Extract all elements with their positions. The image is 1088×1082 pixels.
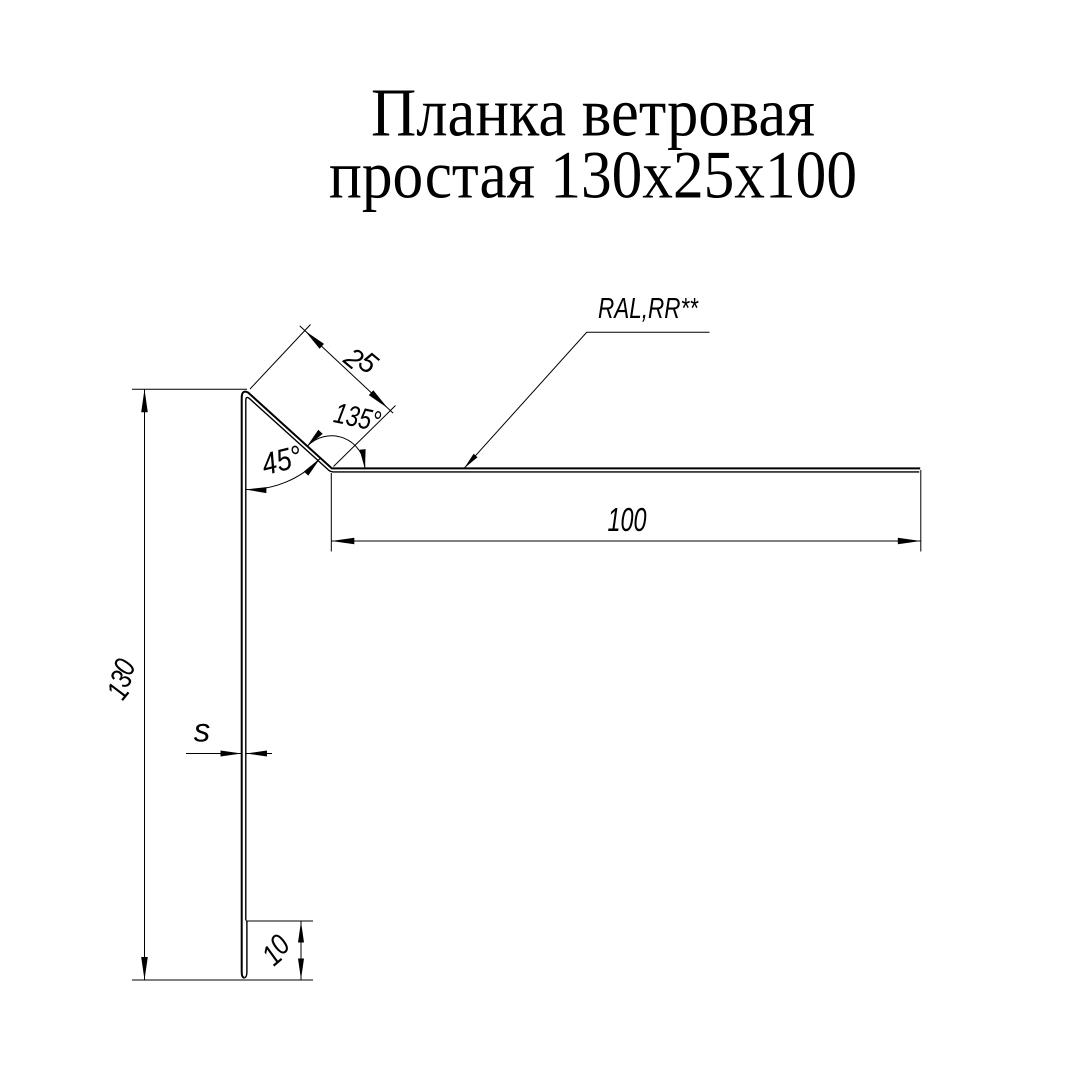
svg-text:100: 100 — [608, 501, 647, 538]
svg-text:простая 130х25х100: простая 130х25х100 — [329, 137, 857, 213]
svg-text:RAL,RR**: RAL,RR** — [598, 293, 699, 325]
svg-text:s: s — [194, 712, 211, 749]
